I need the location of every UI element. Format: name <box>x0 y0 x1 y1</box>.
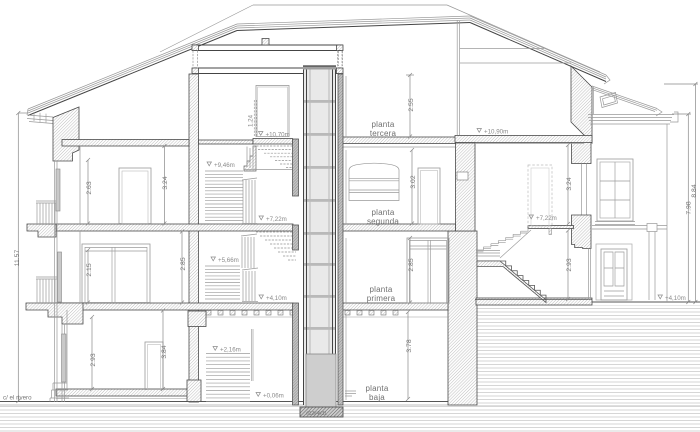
svg-text:2.85: 2.85 <box>180 257 187 270</box>
svg-text:+10,70m: +10,70m <box>266 132 290 139</box>
svg-text:tercera: tercera <box>370 129 397 138</box>
svg-text:c/ el rivero: c/ el rivero <box>3 395 32 402</box>
svg-text:2.93: 2.93 <box>90 353 97 366</box>
svg-text:planta: planta <box>372 120 395 129</box>
svg-text:2.85: 2.85 <box>408 258 415 271</box>
svg-text:+4,10m: +4,10m <box>266 295 287 302</box>
svg-text:segunda: segunda <box>367 217 399 226</box>
svg-text:planta: planta <box>372 208 395 217</box>
svg-text:2.55: 2.55 <box>408 98 415 111</box>
svg-text:planta: planta <box>370 285 393 294</box>
svg-text:+7,22m: +7,22m <box>266 216 287 223</box>
svg-text:3.02: 3.02 <box>410 175 417 188</box>
svg-text:#12#4#31: #12#4#31 <box>306 411 327 417</box>
svg-text:11.57: 11.57 <box>14 250 21 267</box>
svg-text:primera: primera <box>367 294 396 303</box>
svg-text:planta: planta <box>366 384 389 393</box>
svg-text:8.84: 8.84 <box>691 184 698 197</box>
svg-text:baja: baja <box>369 393 385 402</box>
svg-text:2.15: 2.15 <box>86 263 93 276</box>
svg-text:2.63: 2.63 <box>86 181 93 194</box>
svg-text:+2,16m: +2,16m <box>220 347 241 354</box>
svg-text:3.84: 3.84 <box>161 345 168 358</box>
svg-text:+10,90m: +10,90m <box>484 129 508 136</box>
svg-text:3.24: 3.24 <box>566 177 573 190</box>
svg-text:2.93: 2.93 <box>566 258 573 271</box>
svg-text:3.24: 3.24 <box>162 176 169 189</box>
svg-text:7.98: 7.98 <box>686 201 693 214</box>
svg-text:+9,46m: +9,46m <box>214 162 235 169</box>
svg-text:1.24: 1.24 <box>248 114 255 127</box>
svg-text:+0,06m: +0,06m <box>263 393 284 400</box>
svg-text:+5,66m: +5,66m <box>218 257 239 264</box>
svg-text:+4,10m: +4,10m <box>665 295 686 302</box>
svg-text:3.78: 3.78 <box>406 339 413 352</box>
svg-text:+7,22m: +7,22m <box>536 215 557 222</box>
